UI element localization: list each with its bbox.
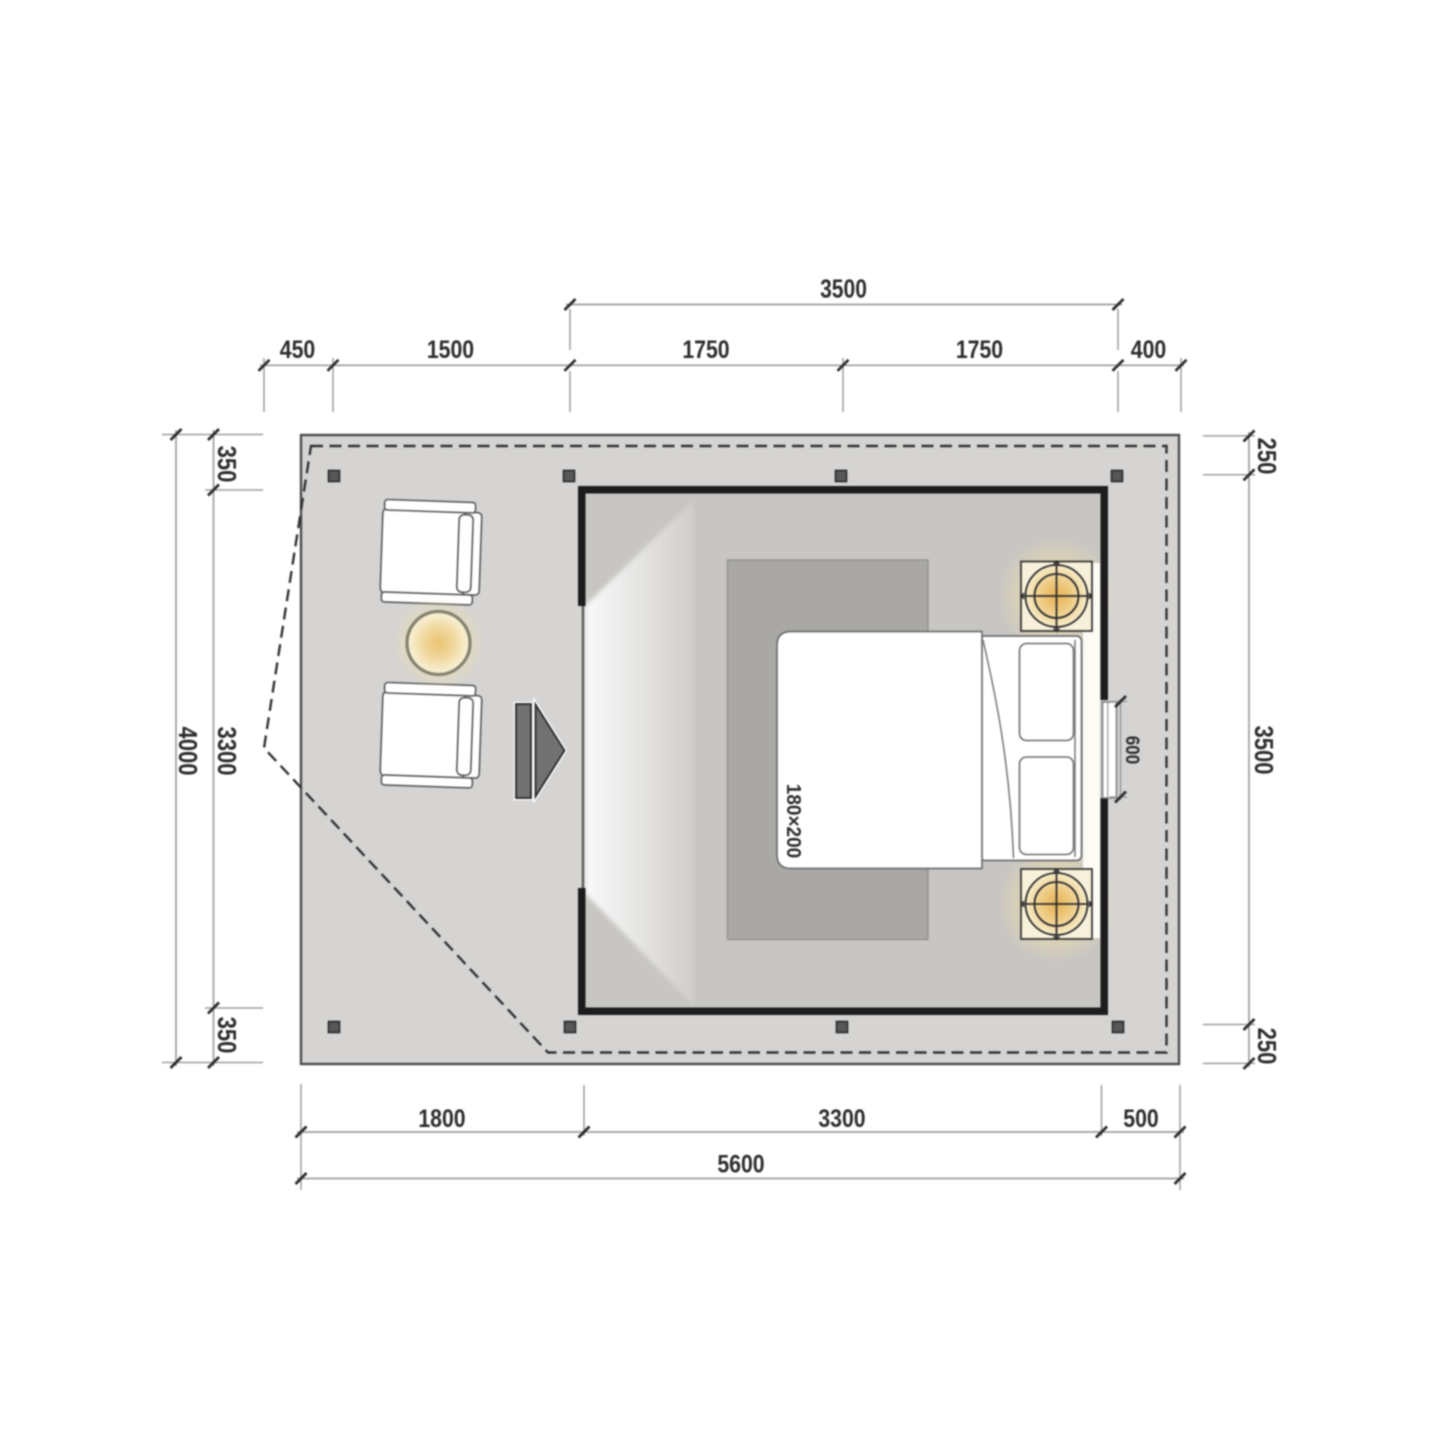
svg-text:450: 450 [280, 335, 315, 363]
svg-text:1500: 1500 [427, 335, 474, 363]
svg-text:3300: 3300 [212, 726, 241, 775]
svg-text:600: 600 [1122, 736, 1143, 765]
svg-text:3300: 3300 [818, 1104, 865, 1132]
svg-text:1750: 1750 [956, 335, 1003, 363]
svg-text:350: 350 [212, 446, 241, 483]
svg-text:350: 350 [212, 1017, 241, 1054]
svg-text:180×200: 180×200 [782, 784, 805, 859]
svg-text:1750: 1750 [682, 335, 729, 363]
svg-text:5600: 5600 [717, 1150, 764, 1178]
svg-text:250: 250 [1252, 438, 1281, 475]
svg-text:4000: 4000 [173, 726, 202, 775]
svg-text:250: 250 [1252, 1028, 1281, 1065]
svg-text:3500: 3500 [820, 276, 867, 305]
svg-text:1800: 1800 [418, 1104, 465, 1132]
svg-text:500: 500 [1123, 1104, 1158, 1132]
svg-text:400: 400 [1131, 335, 1166, 363]
svg-text:3500: 3500 [1249, 725, 1278, 774]
